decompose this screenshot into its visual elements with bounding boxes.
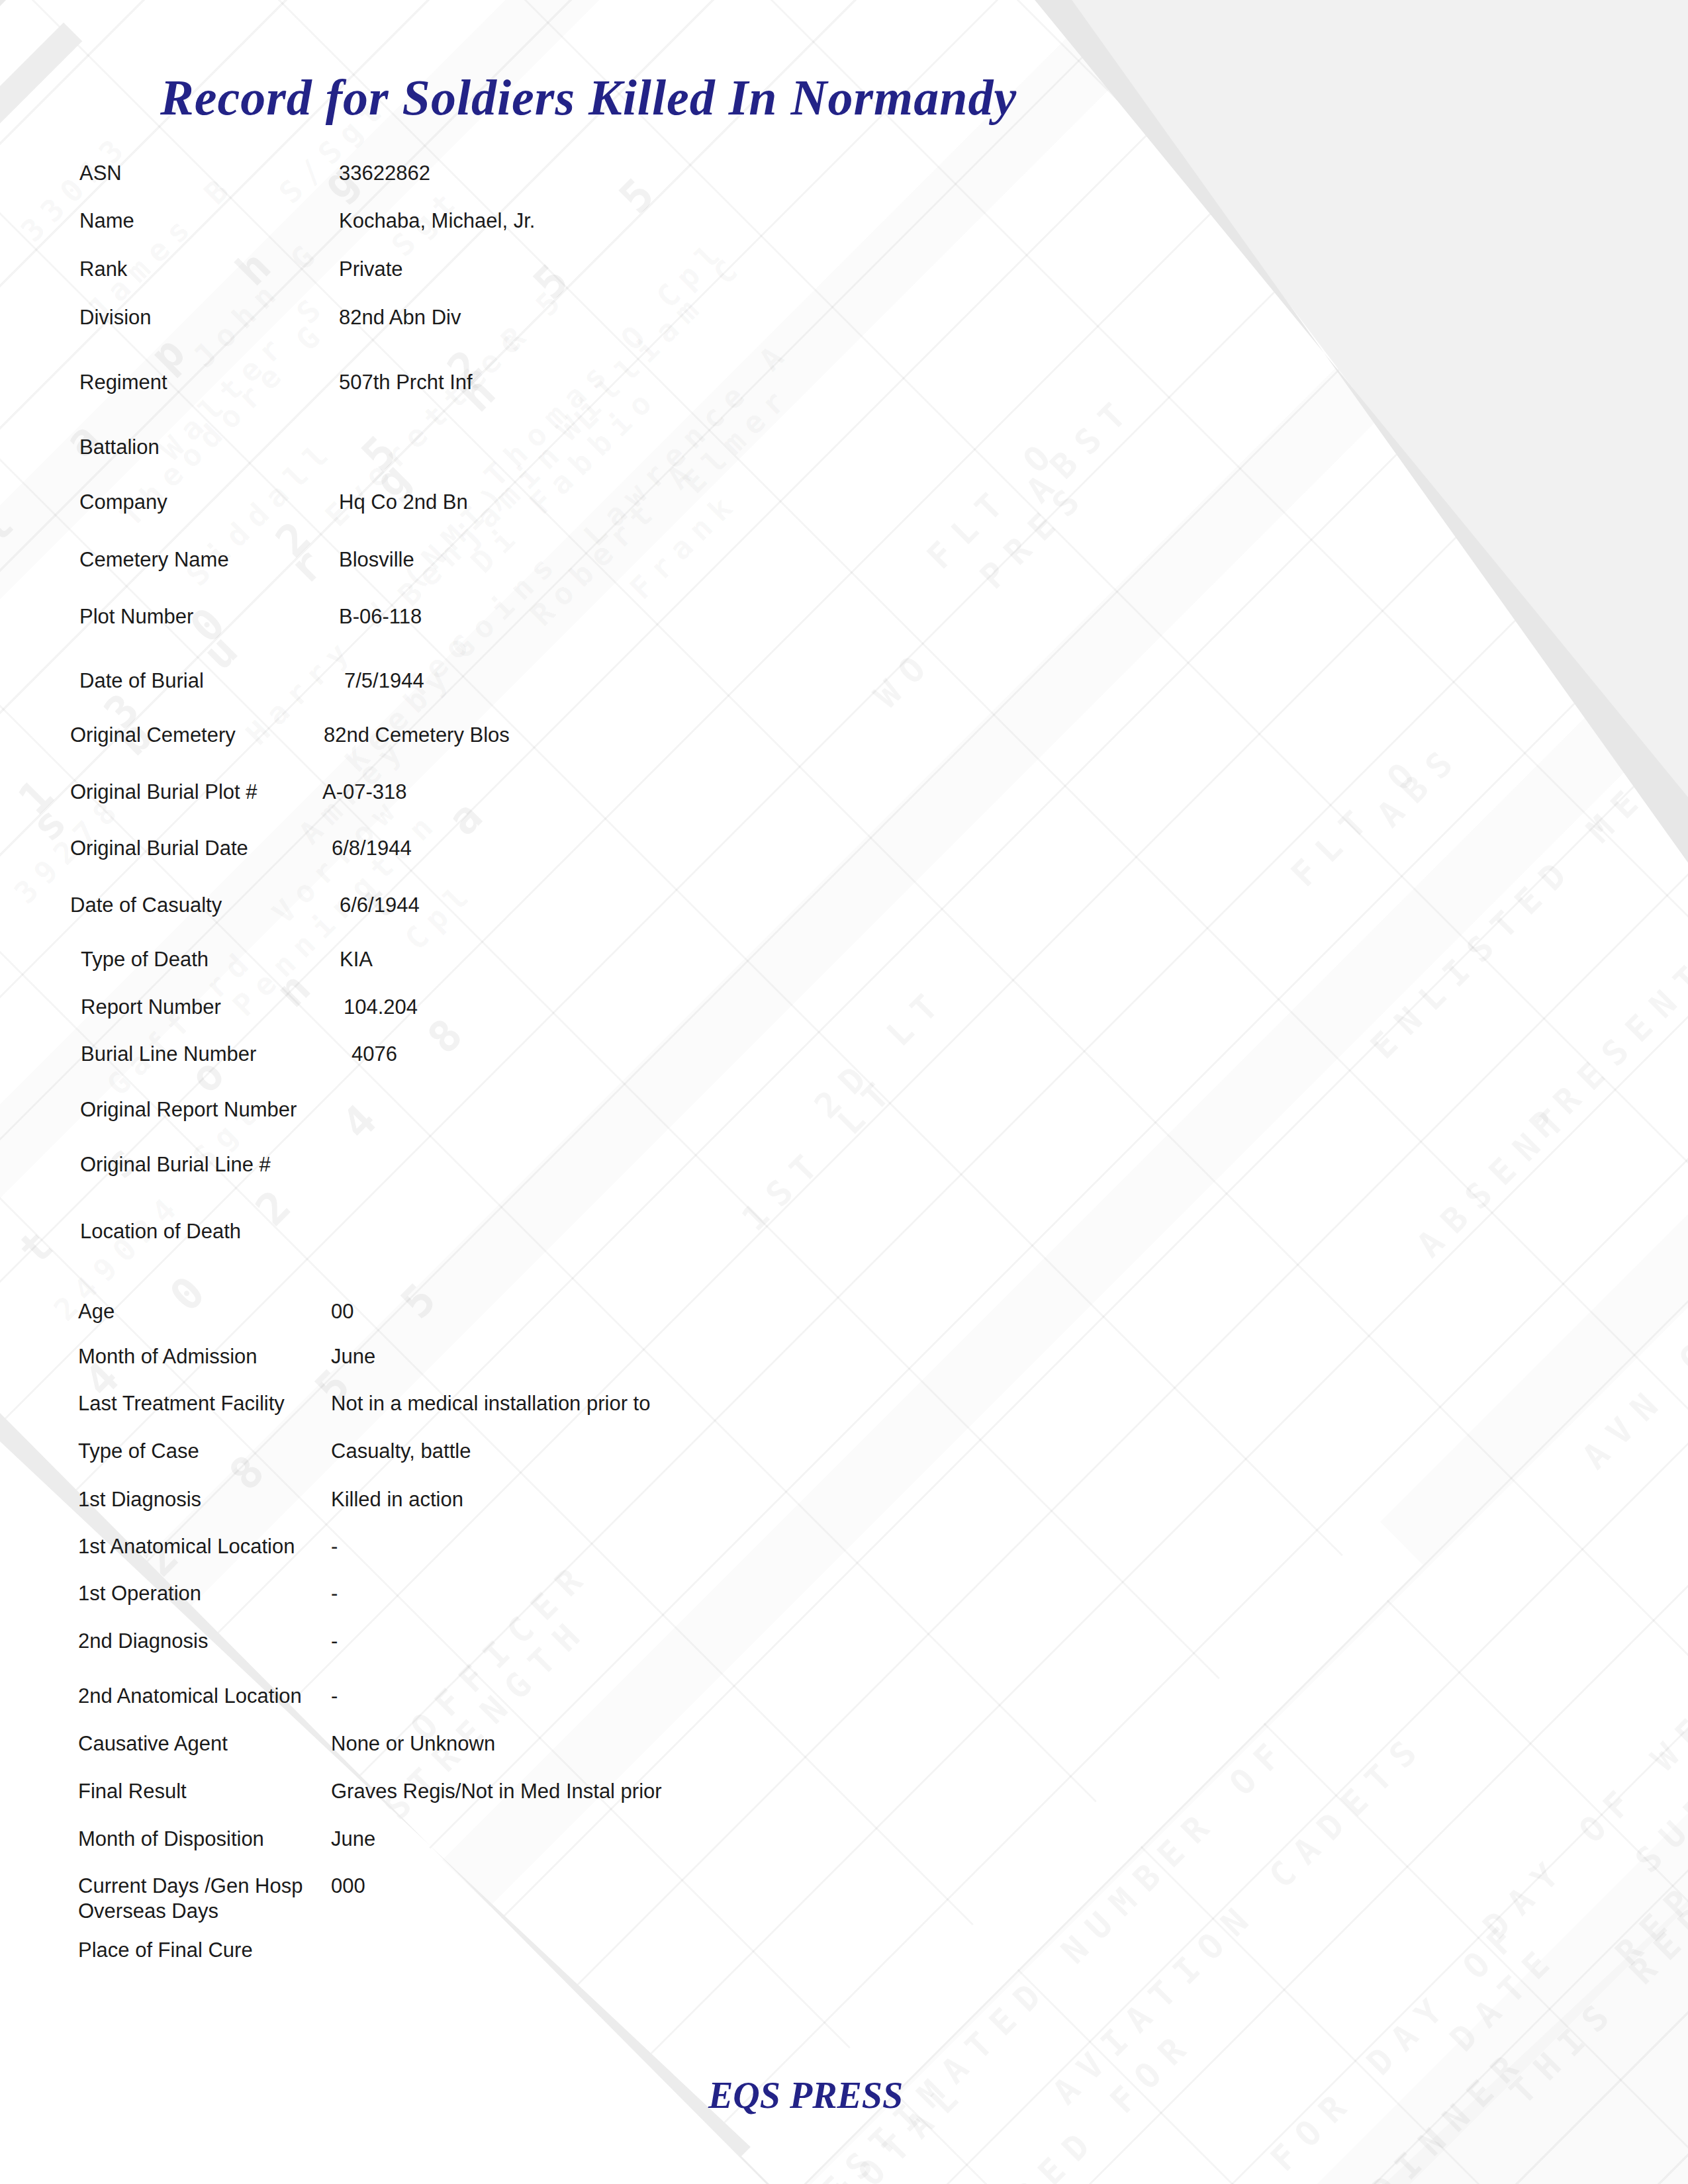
field-label: Name (79, 209, 134, 233)
field-row-date-of-burial: Date of Burial7/5/1944 (0, 669, 1688, 696)
field-row-company: CompanyHq Co 2nd Bn (0, 490, 1688, 517)
field-label: Cemetery Name (79, 548, 229, 572)
field-label: Type of Death (81, 948, 209, 972)
field-row-battalion: Battalion (0, 435, 1688, 462)
publisher-mark: EQS PRESS (708, 2074, 903, 2116)
field-label: Date of Casualty (70, 893, 222, 917)
field-value: Graves Regis/Not in Med Instal prior (331, 1780, 665, 1803)
field-row-2nd-anatomical-location: 2nd Anatomical Location- (0, 1684, 1688, 1711)
field-label: Type of Case (78, 1439, 199, 1463)
field-row-cemetery-name: Cemetery NameBlosville (0, 548, 1688, 574)
field-label: Original Burial Line # (80, 1153, 271, 1177)
field-value: 4076 (352, 1042, 397, 1066)
field-row-1st-operation: 1st Operation- (0, 1582, 1688, 1608)
field-label: Current Days /Gen Hosp (78, 1874, 303, 1898)
field-row-month-of-disposition: Month of DispositionJune (0, 1827, 1688, 1854)
field-value: 82nd Abn Div (339, 306, 461, 330)
field-value: Hq Co 2nd Bn (339, 490, 468, 514)
field-row-month-of-admission: Month of AdmissionJune (0, 1345, 1688, 1371)
field-row-report-number: Report Number104.204 (0, 995, 1688, 1022)
field-label: Division (79, 306, 152, 330)
field-label: Date of Burial (79, 669, 204, 693)
field-label: Month of Disposition (78, 1827, 264, 1851)
field-row-1st-diagnosis: 1st DiagnosisKilled in action (0, 1488, 1688, 1514)
field-row-original-burial-date: Original Burial Date6/8/1944 (0, 837, 1688, 863)
field-row-location-of-death: Location of Death (0, 1220, 1688, 1246)
field-value: June (331, 1827, 375, 1851)
field-value: Not in a medical installation prior to (331, 1392, 665, 1416)
field-label: Final Result (78, 1780, 187, 1803)
field-value: June (331, 1345, 375, 1369)
field-value: Kochaba, Michael, Jr. (339, 209, 535, 233)
field-row-last-treatment-facility: Last Treatment FacilityNot in a medical … (0, 1392, 1688, 1418)
field-value: - (331, 1684, 338, 1708)
field-row-original-report-number: Original Report Number (0, 1098, 1688, 1124)
field-value: - (331, 1582, 338, 1606)
field-label: Location of Death (80, 1220, 241, 1244)
field-row-rank: RankPrivate (0, 257, 1688, 284)
field-label: ASN (79, 161, 122, 185)
field-row-burial-line-number: Burial Line Number4076 (0, 1042, 1688, 1069)
field-label: 1st Anatomical Location (78, 1535, 295, 1559)
field-row-current-days: Current Days /Gen Hosp000 (0, 1874, 1688, 1901)
field-value: Killed in action (331, 1488, 463, 1512)
field-row-original-burial-plot: Original Burial Plot #A-07-318 (0, 780, 1688, 807)
field-value: 33622862 (339, 161, 430, 185)
field-label: Plot Number (79, 605, 193, 629)
field-row-original-cemetery: Original Cemetery82nd Cemetery Blos (0, 723, 1688, 750)
field-value: 7/5/1944 (344, 669, 424, 693)
field-label: Place of Final Cure (78, 1938, 253, 1962)
field-label: 1st Diagnosis (78, 1488, 201, 1512)
field-row-regiment: Regiment507th Prcht Inf (0, 371, 1688, 397)
field-row-final-result: Final ResultGraves Regis/Not in Med Inst… (0, 1780, 1688, 1806)
field-value: Casualty, battle (331, 1439, 471, 1463)
field-label: Causative Agent (78, 1732, 228, 1756)
field-label: Rank (79, 257, 127, 281)
field-row-original-burial-line: Original Burial Line # (0, 1153, 1688, 1179)
field-value: 82nd Cemetery Blos (324, 723, 510, 747)
field-label: Month of Admission (78, 1345, 258, 1369)
field-label: Original Burial Date (70, 837, 248, 860)
field-row-age: Age00 (0, 1300, 1688, 1326)
field-value: 6/6/1944 (340, 893, 420, 917)
field-label: Company (79, 490, 167, 514)
field-label: 2nd Anatomical Location (78, 1684, 302, 1708)
page-title: Record for Soldiers Killed In Normandy (160, 69, 1017, 126)
field-row-1st-anatomical-location: 1st Anatomical Location- (0, 1535, 1688, 1561)
field-value: - (331, 1535, 338, 1559)
field-row-2nd-diagnosis: 2nd Diagnosis- (0, 1629, 1688, 1656)
field-value: Blosville (339, 548, 414, 572)
field-value: 000 (331, 1874, 365, 1898)
field-label: Battalion (79, 435, 160, 459)
field-label: Original Cemetery (70, 723, 236, 747)
field-value: 6/8/1944 (332, 837, 412, 860)
field-row-type-of-case: Type of CaseCasualty, battle (0, 1439, 1688, 1466)
field-label: 2nd Diagnosis (78, 1629, 208, 1653)
field-row-type-of-death: Type of DeathKIA (0, 948, 1688, 974)
field-row-name: NameKochaba, Michael, Jr. (0, 209, 1688, 236)
field-value: Private (339, 257, 402, 281)
field-label: Regiment (79, 371, 167, 394)
field-row-asn: ASN33622862 (0, 161, 1688, 188)
field-label: Last Treatment Facility (78, 1392, 285, 1416)
document-page: a t a p h g v o s b u r g h h u t s o n … (0, 0, 1688, 2184)
field-label: Original Burial Plot # (70, 780, 258, 804)
field-label-overseas-days: Overseas Days (78, 1899, 218, 1923)
field-row-date-of-casualty: Date of Casualty6/6/1944 (0, 893, 1688, 920)
field-label: Report Number (81, 995, 221, 1019)
field-label: Original Report Number (80, 1098, 297, 1122)
field-value: 104.204 (344, 995, 418, 1019)
field-row-causative-agent: Causative AgentNone or Unknown (0, 1732, 1688, 1758)
field-value: 00 (331, 1300, 353, 1324)
field-value: None or Unknown (331, 1732, 495, 1756)
field-row-place-of-final-cure: Place of Final Cure (0, 1938, 1688, 1965)
field-row-plot-number: Plot NumberB-06-118 (0, 605, 1688, 631)
field-value: B-06-118 (339, 605, 422, 629)
field-value: 507th Prcht Inf (339, 371, 473, 394)
field-row-division: Division82nd Abn Div (0, 306, 1688, 332)
field-label: 1st Operation (78, 1582, 201, 1606)
field-label: Age (78, 1300, 115, 1324)
field-value: KIA (340, 948, 373, 972)
field-value: - (331, 1629, 338, 1653)
field-value: A-07-318 (322, 780, 407, 804)
field-label: Burial Line Number (81, 1042, 256, 1066)
